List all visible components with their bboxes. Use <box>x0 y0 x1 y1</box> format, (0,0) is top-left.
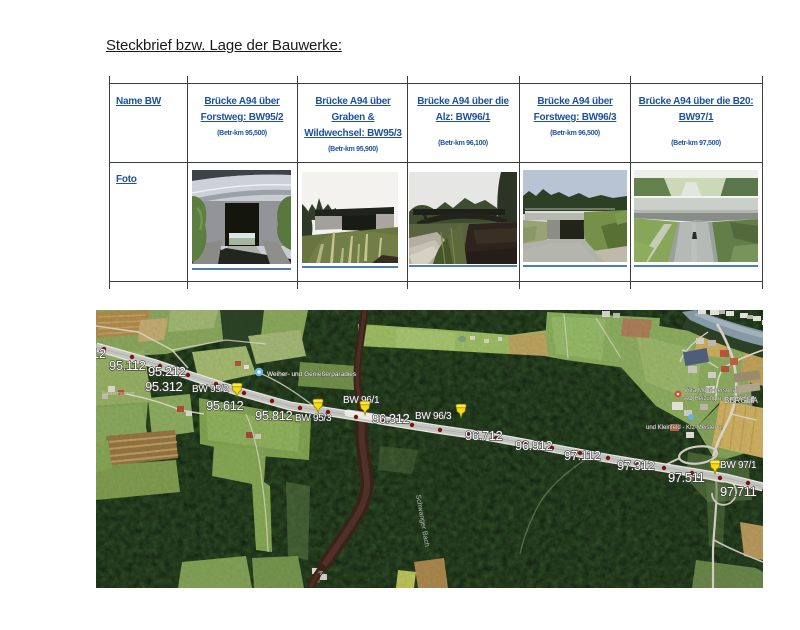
svg-text:und Kleinfeld - Kfz-Meister u.: und Kleinfeld - Kfz-Meister u. <box>646 425 723 431</box>
svg-text:95.112: 95.112 <box>109 358 146 373</box>
svg-text:96.312: 96.312 <box>372 411 410 426</box>
svg-text:12: 12 <box>96 346 106 361</box>
svg-text:BW 95/2: BW 95/2 <box>192 384 229 395</box>
svg-text:Vitra Mobil-personal: Vitra Mobil-personal <box>684 388 737 394</box>
svg-text:BW 97/1: BW 97/1 <box>720 460 757 471</box>
svg-text:BW 96/3: BW 96/3 <box>415 411 452 422</box>
svg-text:97.711: 97.711 <box>720 484 757 499</box>
svg-text:Niedermoosen: Niedermoosen <box>102 391 135 397</box>
svg-text:96.912: 96.912 <box>515 438 553 453</box>
svg-text:95.312: 95.312 <box>145 379 183 394</box>
svg-text:95.612: 95.612 <box>206 398 244 413</box>
svg-text:BERGHA: BERGHA <box>724 396 758 405</box>
svg-text:97.511: 97.511 <box>668 470 705 485</box>
svg-text:BW 95/3: BW 95/3 <box>295 413 332 424</box>
svg-text:97.112: 97.112 <box>564 448 601 463</box>
svg-text:95.212: 95.212 <box>148 364 186 379</box>
svg-text:97.312: 97.312 <box>617 458 655 473</box>
svg-text:Weiher- und Genießerparadies: Weiher- und Genießerparadies <box>267 371 357 378</box>
svg-text:95.812: 95.812 <box>255 408 293 423</box>
svg-text:96.712: 96.712 <box>465 428 503 443</box>
